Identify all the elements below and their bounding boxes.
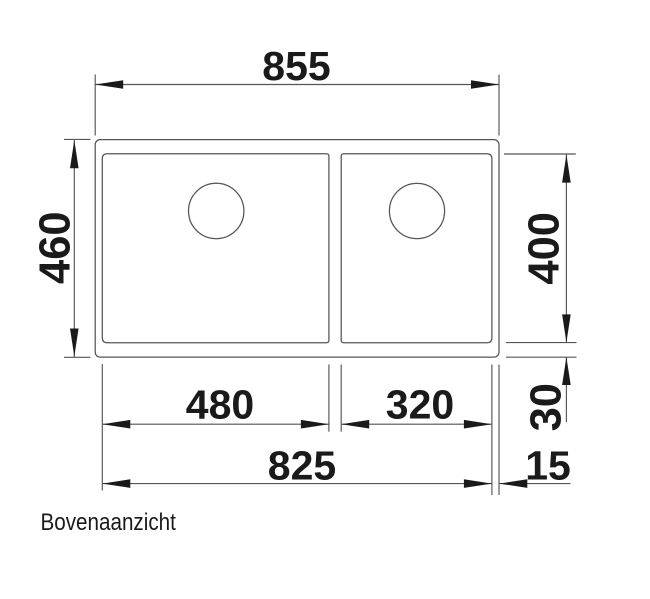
svg-text:855: 855	[262, 43, 330, 89]
svg-text:320: 320	[386, 381, 454, 427]
svg-text:460: 460	[32, 211, 80, 284]
svg-text:825: 825	[268, 442, 336, 488]
svg-text:400: 400	[521, 212, 569, 285]
svg-text:Bovenaanzicht: Bovenaanzicht	[41, 509, 177, 536]
svg-text:480: 480	[186, 381, 254, 427]
svg-text:15: 15	[525, 442, 571, 488]
svg-text:30: 30	[523, 383, 571, 431]
